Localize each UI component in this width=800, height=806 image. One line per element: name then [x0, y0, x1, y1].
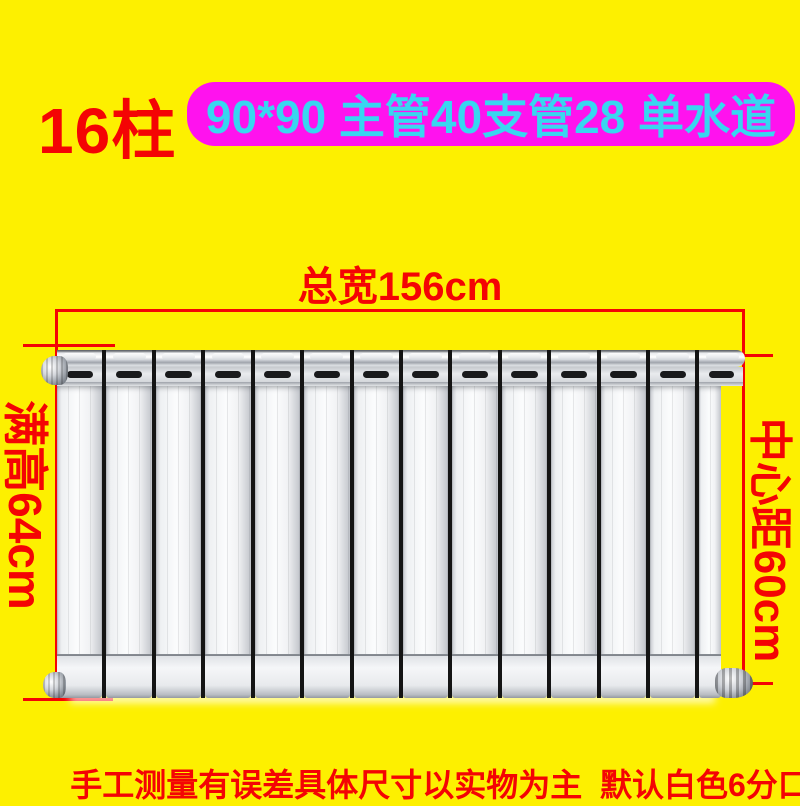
radiator-column — [650, 350, 699, 698]
radiator-column-vent-slot — [699, 367, 742, 382]
spec-banner: 90*90 主管40支管28 单水道 — [187, 82, 795, 146]
radiator-column-foot — [304, 654, 349, 698]
radiator-column-foot — [601, 654, 646, 698]
radiator-column-cap — [502, 350, 547, 367]
radiator-column-body — [354, 386, 399, 654]
spec-banner-text: 90*90 主管40支管28 单水道 — [206, 81, 776, 147]
radiator-column — [354, 350, 403, 698]
radiator-column-vent-slot — [551, 367, 596, 382]
radiator-column-cap — [255, 350, 300, 367]
radiator-column-vent-slot — [304, 367, 349, 382]
radiator-column-body — [699, 386, 720, 654]
radiator-column-body — [106, 386, 151, 654]
full-height-label: 满高64cm — [0, 400, 61, 610]
radiator-column-foot — [452, 654, 497, 698]
radiator-column — [255, 350, 304, 698]
radiator-column-foot — [354, 654, 399, 698]
radiator-column-vent-slot — [354, 367, 399, 382]
radiator-column — [57, 350, 106, 698]
radiator-column-vent-slot — [650, 367, 695, 382]
radiator-column — [304, 350, 353, 698]
radiator-column-cap — [650, 350, 695, 367]
pipe-plug-bottom-left — [43, 672, 66, 698]
radiator-column-vent-slot — [255, 367, 300, 382]
radiator-column-foot — [650, 654, 695, 698]
radiator-column — [502, 350, 551, 698]
radiator-column — [601, 350, 650, 698]
radiator-column-cap — [403, 350, 448, 367]
radiator-column-vent-slot — [205, 367, 250, 382]
radiator-column-foot — [205, 654, 250, 698]
radiator-column-cap — [304, 350, 349, 367]
radiator-column — [205, 350, 254, 698]
radiator-column-cap — [156, 350, 201, 367]
radiator-column-cap — [452, 350, 497, 367]
radiator-column — [699, 350, 744, 698]
radiator-column-foot — [502, 654, 547, 698]
columns-count-label: 16柱 — [38, 80, 176, 172]
radiator-column-vent-slot — [452, 367, 497, 382]
radiator-column-body — [502, 386, 547, 654]
radiator-column-body — [551, 386, 596, 654]
radiator-column-body — [156, 386, 201, 654]
product-image: 16柱 90*90 主管40支管28 单水道 总宽156cm 满高64cm 中心… — [0, 0, 800, 800]
radiator-column-body — [601, 386, 646, 654]
radiator-column-cap — [551, 350, 596, 367]
radiator-column-foot — [403, 654, 448, 698]
pipe-valve-bottom-right — [715, 668, 753, 698]
radiator-column-vent-slot — [601, 367, 646, 382]
radiator-column-foot — [156, 654, 201, 698]
radiator-column — [156, 350, 205, 698]
radiator-column-body — [304, 386, 349, 654]
radiator — [57, 350, 745, 698]
pipe-plug-top-left — [41, 356, 68, 385]
radiator-column-vent-slot — [502, 367, 547, 382]
dimension-tick-left-top — [23, 344, 115, 347]
radiator-column-cap — [106, 350, 151, 367]
measurement-note: 手工测量有误差具体尺寸以实物为主 默认白色6分口 — [70, 760, 800, 806]
radiator-column-body — [403, 386, 448, 654]
radiator-column-body — [650, 386, 695, 654]
radiator-column-body — [205, 386, 250, 654]
radiator-column-foot — [255, 654, 300, 698]
radiator-column-body — [57, 386, 102, 654]
center-distance-label: 中心距60cm — [742, 418, 800, 663]
radiator-column — [403, 350, 452, 698]
radiator-column — [452, 350, 501, 698]
radiator-column-body — [255, 386, 300, 654]
radiator-column-cap — [354, 350, 399, 367]
radiator-column-cap — [205, 350, 250, 367]
radiator-column — [551, 350, 600, 698]
radiator-column-cap — [601, 350, 646, 367]
radiator-column-foot — [106, 654, 151, 698]
radiator-column — [106, 350, 155, 698]
radiator-column-foot — [551, 654, 596, 698]
radiator-column-vent-slot — [156, 367, 201, 382]
radiator-column-body — [452, 386, 497, 654]
radiator-column-vent-slot — [106, 367, 151, 382]
total-width-label: 总宽156cm — [298, 254, 503, 312]
radiator-column-cap — [699, 350, 744, 367]
radiator-column-vent-slot — [403, 367, 448, 382]
